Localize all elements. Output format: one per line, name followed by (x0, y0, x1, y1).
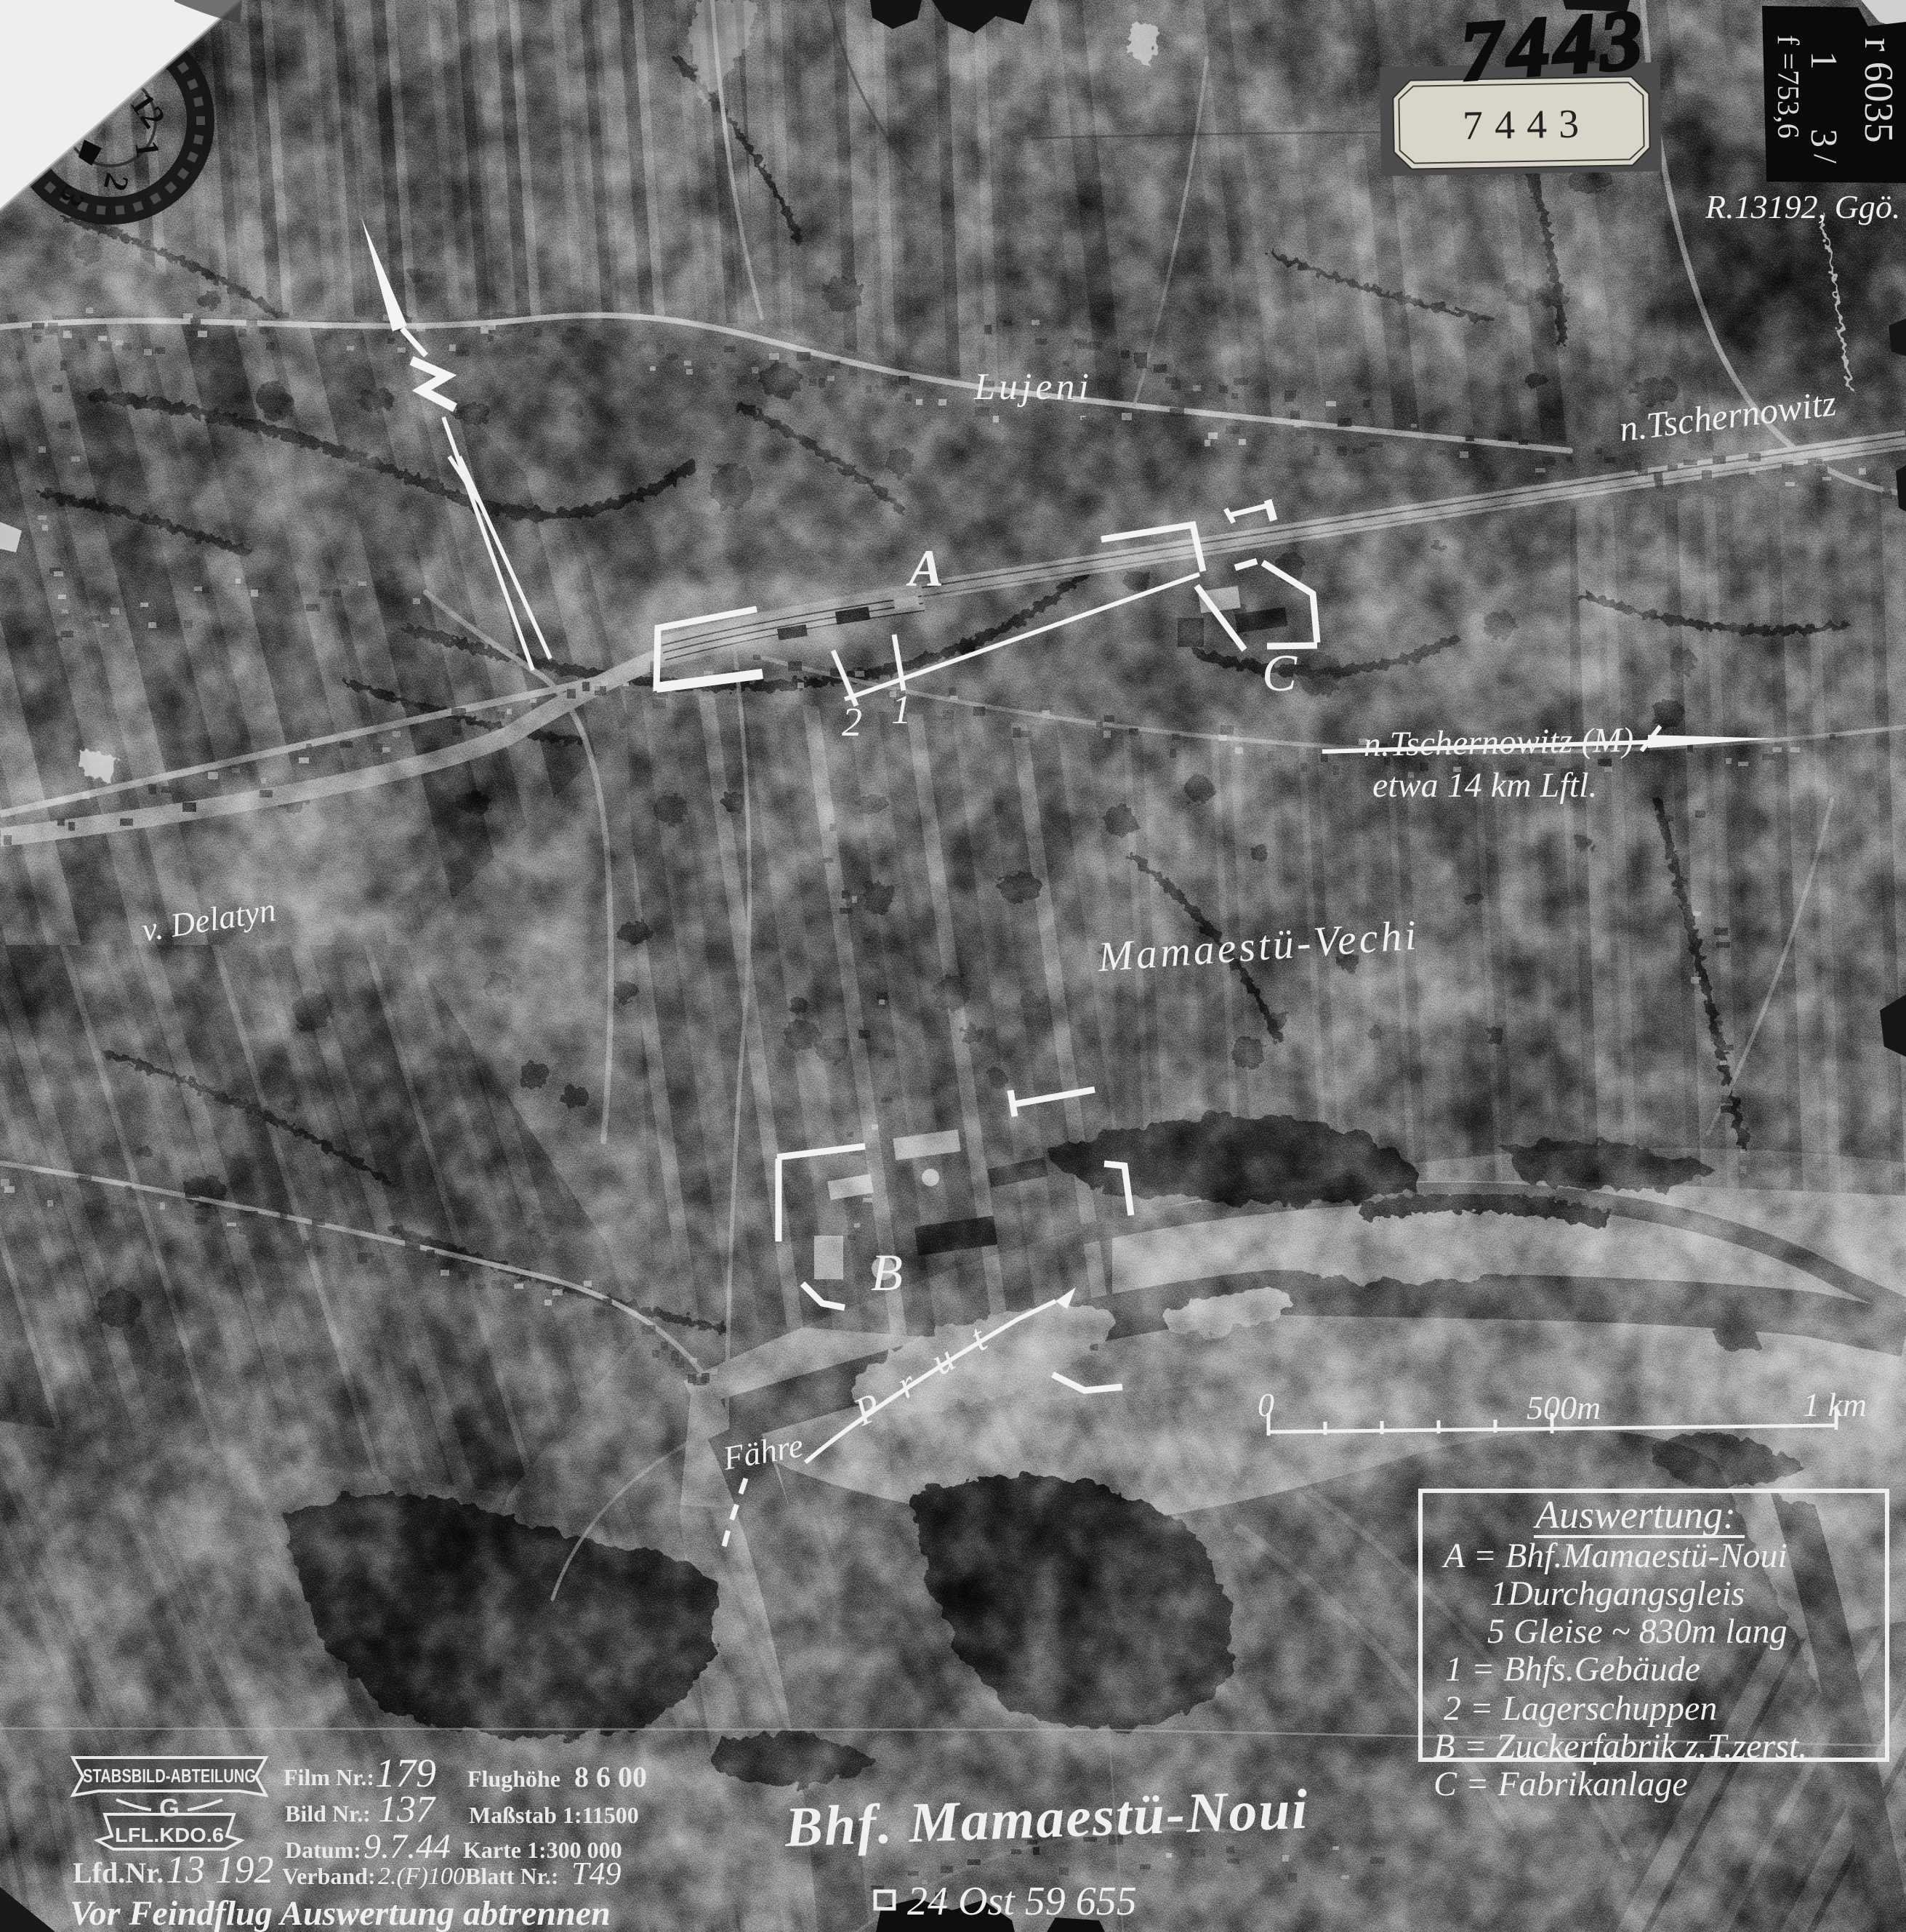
svg-text:13 192: 13 192 (166, 1848, 274, 1891)
svg-text:f =753,6: f =753,6 (1771, 35, 1804, 139)
svg-text:r 6035: r 6035 (1856, 38, 1901, 143)
svg-text:STABSBILD-ABTEILUNG: STABSBILD-ABTEILUNG (83, 1765, 256, 1787)
svg-text:Verband:: Verband: (282, 1863, 376, 1889)
svg-text:Maßstab 1:11500: Maßstab 1:11500 (469, 1802, 639, 1828)
svg-text:24 Ost 59 655: 24 Ost 59 655 (907, 1879, 1137, 1924)
svg-text:1: 1 (891, 688, 912, 733)
svg-text:2: 2 (842, 700, 862, 745)
svg-text:C = Fabrikanlage: C = Fabrikanlage (1433, 1765, 1688, 1803)
svg-text:1 = Bhfs.Gebäude: 1 = Bhfs.Gebäude (1445, 1650, 1700, 1689)
svg-text:Datum:: Datum: (285, 1837, 361, 1863)
svg-text:2.(F)100: 2.(F)100 (378, 1863, 465, 1890)
svg-text:Auswertung:: Auswertung: (1533, 1493, 1736, 1537)
svg-text:1Durchgangsgleis: 1Durchgangsgleis (1490, 1574, 1745, 1613)
svg-text:etwa 14 km Lftl.: etwa 14 km Lftl. (1372, 766, 1597, 805)
svg-text:7443: 7443 (1463, 101, 1591, 148)
svg-text:9.7.44: 9.7.44 (363, 1827, 451, 1866)
svg-text:/: / (1807, 154, 1844, 164)
svg-text:5 Gleise ~ 830m lang: 5 Gleise ~ 830m lang (1487, 1612, 1788, 1651)
svg-text:T49: T49 (571, 1856, 621, 1891)
svg-text:0: 0 (1258, 1386, 1274, 1423)
svg-text:Bild Nr.:: Bild Nr.: (285, 1800, 371, 1827)
svg-text:B = Zuckerfabrik z.T.zerst.: B = Zuckerfabrik z.T.zerst. (1433, 1727, 1807, 1766)
svg-text:Lfd.Nr.: Lfd.Nr. (73, 1856, 164, 1889)
svg-text:2 = Lagerschuppen: 2 = Lagerschuppen (1444, 1689, 1717, 1728)
svg-text:137: 137 (378, 1789, 436, 1830)
svg-text:500m: 500m (1527, 1389, 1601, 1426)
svg-text:n.Tschernowitz (M): n.Tschernowitz (M) (1363, 721, 1633, 764)
svg-text:1 km: 1 km (1803, 1386, 1867, 1423)
svg-text:7443: 7443 (1457, 0, 1649, 99)
svg-text:Film Nr.:: Film Nr.: (284, 1764, 374, 1790)
svg-text:LFL.KDO.6: LFL.KDO.6 (115, 1824, 224, 1846)
svg-text:A = Bhf.Mamaestü-Noui: A = Bhf.Mamaestü-Noui (1441, 1537, 1788, 1575)
svg-text:Flughöhe: Flughöhe (467, 1766, 560, 1792)
svg-text:B: B (871, 1244, 903, 1302)
svg-text:R.13192, Ggö.: R.13192, Ggö. (1705, 188, 1900, 225)
svg-text:C: C (1262, 644, 1298, 702)
svg-text:A: A (906, 539, 944, 597)
svg-text:8 6 00: 8 6 00 (574, 1760, 647, 1793)
svg-text:Blatt Nr.:: Blatt Nr.: (465, 1863, 559, 1889)
svg-text:Lujeni: Lujeni (973, 366, 1093, 408)
svg-text:Vor Feindflug Auswertung abtre: Vor Feindflug Auswertung abtrennen (70, 1894, 611, 1932)
